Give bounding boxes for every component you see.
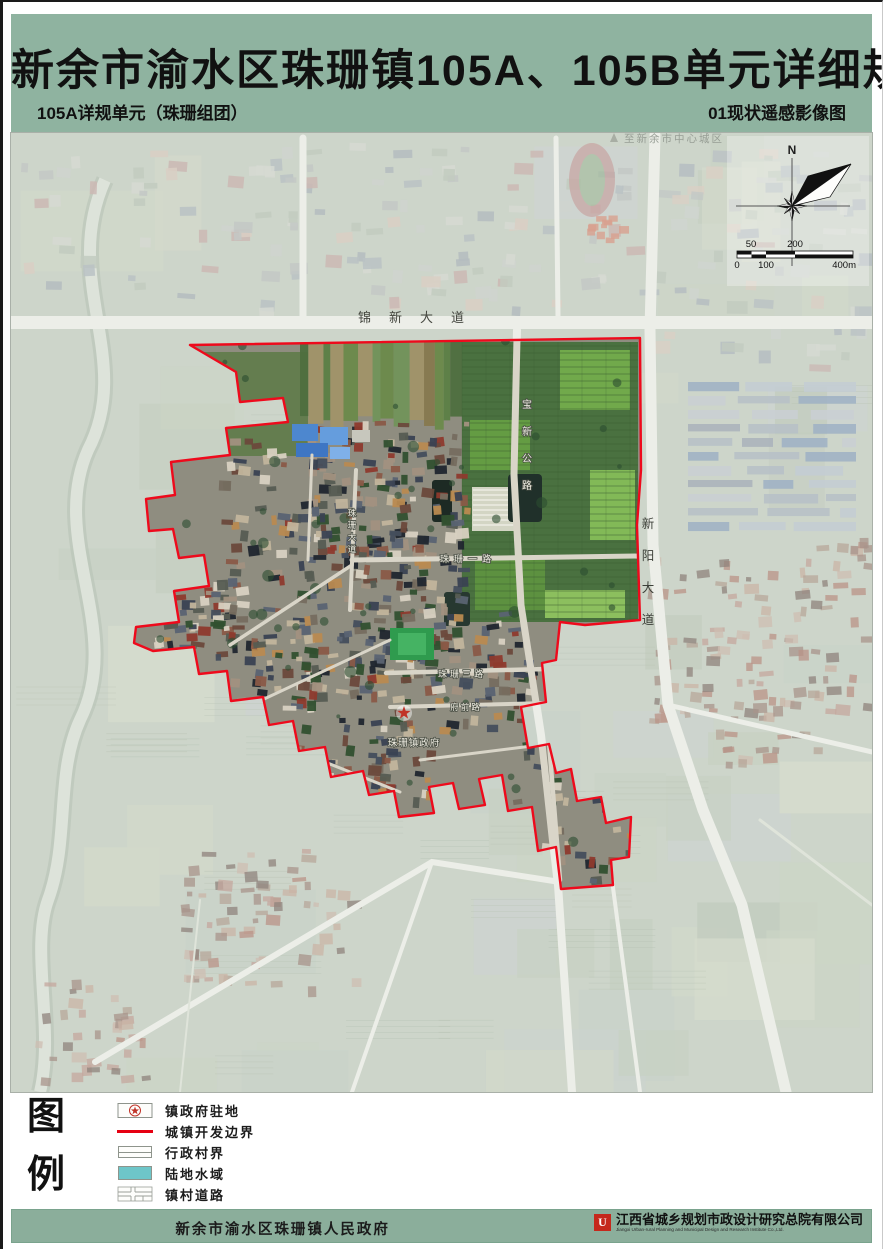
scale-tick-400m: 400m (832, 260, 856, 271)
government-name: 新余市渝水区珠珊镇人民政府 (12, 1218, 553, 1239)
legend-item-water: 陆地水域 (117, 1165, 255, 1181)
legend-item-boundary: 城镇开发边界 (117, 1123, 255, 1139)
legend: 图 例 镇政府驻地 城镇开发边界 行政村界 (11, 1098, 431, 1200)
legend-title-char-2: 例 (27, 1156, 91, 1194)
legend-item-roads: 镇村道路 (117, 1186, 255, 1202)
design-institute: U 江西省城乡规划市政设计研究总院有限公司 Jiangxi Urban-rura… (594, 1213, 863, 1232)
institute-name-en: Jiangxi Urban-rural Planning and Municip… (616, 1227, 863, 1232)
sheet-subtitle: 01现状遥感影像图 (708, 99, 846, 124)
road-label-zhushan-sanlu: 珠珊三路 (438, 668, 486, 679)
road-label-fuqian: 府前路 (450, 702, 482, 712)
boundary-swatch (117, 1124, 153, 1139)
scale-tick-50: 50 (746, 239, 757, 250)
legend-item-gov-seat: 镇政府驻地 (117, 1102, 255, 1118)
legend-item-village-border: 行政村界 (117, 1144, 255, 1160)
gov-seat-swatch (117, 1103, 153, 1118)
scale-tick-200: 200 (787, 239, 803, 250)
stadium (569, 143, 615, 217)
north-label: N (788, 143, 797, 157)
map-canvas: 珠珊镇政府 锦新大道 新阳大道 宝新公路 珠珊大道 珠珊一路 珠珊三路 府前路 … (11, 133, 872, 1092)
to-city-annotation: 至新余市中心城区 (624, 133, 724, 145)
legend-title: 图 例 (11, 1098, 91, 1194)
village-border-swatch (117, 1145, 153, 1160)
water-swatch (117, 1166, 153, 1181)
page-title: 新余市渝水区珠珊镇105A、105B单元详细规划 (11, 36, 872, 98)
road-label-zhushan-yilu: 珠珊一路 (440, 553, 496, 564)
footer-bar: 新余市渝水区珠珊镇人民政府 U 江西省城乡规划市政设计研究总院有限公司 Jian… (11, 1209, 872, 1243)
scale-tick-100: 100 (758, 260, 774, 271)
legend-title-char-1: 图 (27, 1098, 91, 1136)
header-banner: 新余市渝水区珠珊镇105A、105B单元详细规划 105A详规单元（珠珊组团） … (11, 14, 872, 132)
scale-tick-0: 0 (734, 260, 739, 271)
satellite-map: 珠珊镇政府 锦新大道 新阳大道 宝新公路 珠珊大道 珠珊一路 珠珊三路 府前路 … (11, 133, 872, 1092)
institute-logo: U (594, 1214, 611, 1231)
roads-swatch (117, 1187, 153, 1202)
unit-subtitle: 105A详规单元（珠珊组团） (37, 99, 248, 124)
institute-name-cn: 江西省城乡规划市政设计研究总院有限公司 (616, 1213, 863, 1227)
road-label-jinxin: 锦新大道 (358, 310, 482, 325)
plan-sheet: 新余市渝水区珠珊镇105A、105B单元详细规划 105A详规单元（珠珊组团） … (0, 0, 883, 1249)
subtitle-row: 105A详规单元（珠珊组团） 01现状遥感影像图 (37, 99, 846, 124)
gov-seat-label: 珠珊镇政府 (388, 737, 441, 749)
